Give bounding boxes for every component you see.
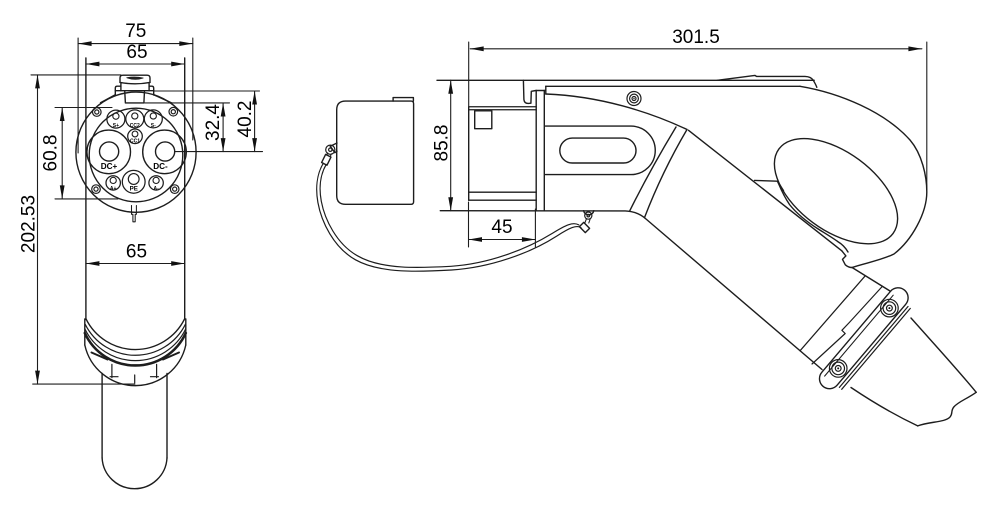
svg-text:DC+: DC+: [101, 162, 118, 171]
svg-text:S+: S+: [113, 123, 119, 129]
svg-text:PE: PE: [130, 186, 138, 193]
svg-text:85.8: 85.8: [432, 125, 453, 162]
svg-text:A+: A+: [110, 186, 117, 192]
svg-text:45: 45: [491, 217, 512, 238]
svg-text:301.5: 301.5: [672, 27, 720, 48]
svg-text:75: 75: [125, 21, 146, 42]
svg-text:65: 65: [126, 42, 147, 63]
svg-text:202.53: 202.53: [19, 195, 40, 253]
svg-text:32.4: 32.4: [203, 104, 224, 141]
svg-text:CC2: CC2: [130, 123, 140, 129]
svg-text:65: 65: [126, 242, 147, 263]
svg-text:40.2: 40.2: [235, 101, 256, 138]
svg-text:S-: S-: [151, 123, 156, 129]
svg-text:CC1: CC1: [130, 139, 140, 145]
svg-text:A-: A-: [153, 186, 159, 192]
svg-text:60.8: 60.8: [41, 135, 62, 172]
svg-text:DC-: DC-: [153, 162, 168, 171]
